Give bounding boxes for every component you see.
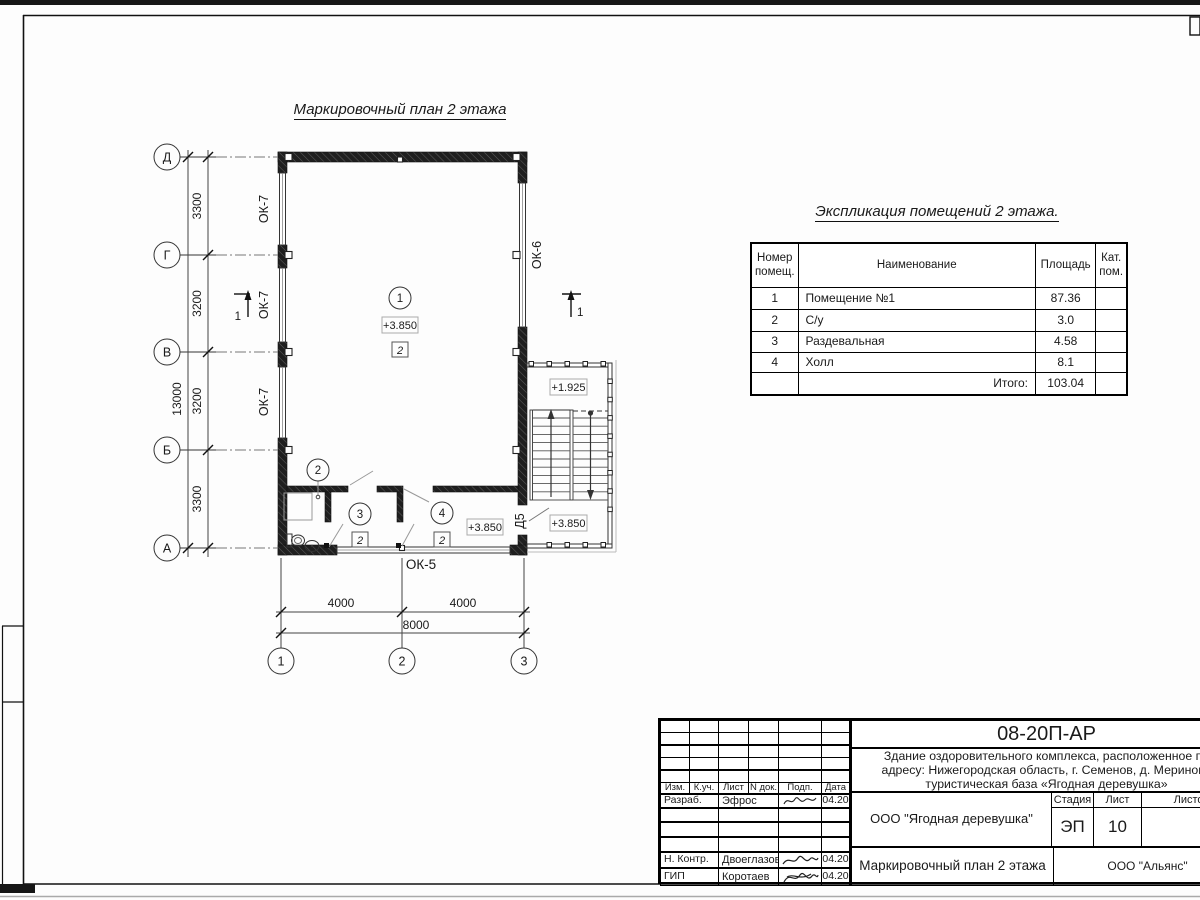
dim-left-4: 3300 [190,485,204,512]
tb-header-podp: Подп. [778,782,822,794]
tb-revision-cell [660,770,690,783]
tb-name-razrab: Эфрос [718,794,779,808]
signature-icon [781,853,819,867]
explication-title: Экспликация помещений 2 этажа. [802,203,1072,222]
title-block: Изм. К.уч. Лист N док. Подп. Дата Разраб… [658,718,1200,884]
tb-header-kuch: К.уч. [689,782,719,794]
tb-signature-nkontr [778,852,822,868]
section-mark-label-right: 1 [577,307,583,319]
window-label-ok7-3: ОК-7 [257,388,271,416]
elevation-room1: +3.850 [383,320,417,332]
tb-header-data: Дата [821,782,850,794]
tb-revision-cell [821,770,850,783]
tb-revision-cell [748,770,779,783]
dim-bottom-1: 4000 [328,596,355,610]
room-number-4: 4 [439,508,446,520]
col-header-number: Номер помещ. [752,244,799,288]
cell-name: Раздевальная [799,332,1036,353]
sheet-label: Лист [1093,792,1142,808]
dimension-ticks [183,152,529,638]
tb-revision-cell [689,745,719,758]
shower-tray [284,493,312,520]
tb-revision-cell [689,770,719,783]
tb-header-izm: Изм. [660,782,690,794]
tb-name-nkontr: Двоеглазов [718,852,779,868]
sheet-number: 10 [1093,807,1142,847]
section-mark-label-left: 1 [235,311,241,323]
axis-label-1: 1 [278,655,285,669]
dim-bottom-2: 4000 [450,596,477,610]
room-number-3: 3 [357,509,363,521]
tb-empty-cell [821,808,850,822]
tb-header-ndok: N док. [748,782,779,794]
explication-header-row: Номер помещ. Наименование Площадь Кат. п… [752,244,1126,288]
tb-empty-cell [821,822,850,837]
tb-revision-cell [689,732,719,745]
axis-label-3: 3 [521,655,528,669]
dim-left-2: 3200 [190,290,204,317]
tb-revision-cell [821,732,850,745]
tb-date-razrab: 04.20 [821,794,850,808]
total-label: Итого: [799,373,1036,394]
tb-revision-cell [660,732,690,745]
category-room4: 2 [438,535,445,547]
tb-revision-cell [660,757,690,770]
room-number-1: 1 [397,293,403,305]
axis-label-v: В [163,346,171,360]
leader-lines [316,471,429,548]
axis-bubbles [154,144,537,674]
table-row: 4 Холл 8.1 [752,353,1126,373]
window-label-ok6: ОК-6 [530,241,544,269]
document-number: 08-20П-АР [850,720,1200,748]
organization-name: ООО "Альянс" [1053,847,1200,886]
tb-revision-cell [718,745,749,758]
signature-icon [781,869,819,885]
tb-revision-cell [821,757,850,770]
axis-label-a: А [163,542,172,556]
total-value: 103.04 [1036,373,1096,394]
tb-role-nkontr: Н. Контр. [660,852,719,868]
tb-empty-cell [821,837,850,852]
tb-revision-cell [718,732,749,745]
tb-role-gip: ГИП [660,868,719,886]
tb-signature-gip [778,868,822,886]
cell-area: 4.58 [1036,332,1096,353]
elevation-hall: +3.850 [468,522,502,534]
axis-label-d: Д [163,151,172,165]
tb-empty-cell [718,808,779,822]
window-label-ok7-1: ОК-7 [257,195,271,223]
tb-role-razrab: Разраб. [660,794,719,808]
elevation-stair-upper: +1.925 [552,382,586,394]
tb-revision-cell [748,720,779,733]
toilet-bowl [292,535,305,546]
tb-empty-cell [660,808,719,822]
stage-value: ЭП [1051,807,1094,847]
col-header-name: Наименование [799,244,1036,288]
project-line-1: Здание оздоровительного комплекса, распо… [884,749,1200,763]
stage-label: Стадия [1051,792,1094,808]
tb-revision-cell [689,720,719,733]
cell-number: 1 [752,288,799,310]
dim-left-3: 3200 [190,387,204,414]
project-description: Здание оздоровительного комплекса, распо… [850,748,1200,792]
tb-empty-cell [778,837,822,852]
cell-name: С/у [799,310,1036,332]
tb-revision-cell [748,745,779,758]
door-label-d5: Д5 [513,513,527,528]
sheets-label: Листов [1141,792,1200,808]
dim-left-1: 3300 [190,192,204,219]
tb-revision-cell [748,732,779,745]
door-leaf-line [529,508,549,521]
tb-empty-cell [778,822,822,837]
tb-revision-cell [718,720,749,733]
tb-empty-cell [778,808,822,822]
tb-revision-cell [778,720,822,733]
tb-revision-cell [660,720,690,733]
table-row: 3 Раздевальная 4.58 [752,332,1126,353]
project-line-2: адресу: Нижегородская область, г. Семено… [882,763,1200,777]
category-room3: 2 [356,535,363,547]
tb-revision-cell [778,732,822,745]
cell-category [1096,288,1126,310]
room-number-2: 2 [315,465,321,477]
table-total-row: Итого: 103.04 [752,373,1126,394]
tb-revision-cell [718,770,749,783]
elevation-stair-lower: +3.850 [552,518,586,530]
tb-revision-cell [821,745,850,758]
signature-icon [782,795,818,807]
project-line-3: туристическая база «Ягодная деревушка» [925,777,1167,791]
plan-title: Маркировочный план 2 этажа [285,101,515,120]
tb-revision-cell [778,745,822,758]
tb-header-list: Лист [718,782,749,794]
axis-label-2: 2 [399,655,406,669]
cell-area: 87.36 [1036,288,1096,310]
window-label-ok7-2: ОК-7 [257,291,271,319]
cell-empty [752,373,799,394]
category-room1: 2 [396,345,403,357]
tb-empty-cell [718,837,779,852]
tb-name-gip: Коротаев [718,868,779,886]
tb-revision-cell [748,757,779,770]
tb-signature-razrab [778,794,822,808]
table-row: 1 Помещение №1 87.36 [752,288,1126,310]
tb-date-gip: 04.20 [821,868,850,886]
section-marks [234,290,581,317]
tb-date-nkontr: 04.20 [821,852,850,868]
tb-empty-cell [660,822,719,837]
dimension-lines [188,150,530,648]
axis-label-g: Г [164,249,171,263]
cell-number: 4 [752,353,799,373]
tb-revision-cell [821,720,850,733]
tb-revision-cell [778,770,822,783]
tb-revision-cell [718,757,749,770]
drawing-sheet: Д Г В Б А 1 2 3 3300 3200 3200 3300 1300… [0,0,1200,900]
cell-name: Помещение №1 [799,288,1036,310]
partition-walls [287,486,518,522]
sheets-value [1141,807,1200,847]
dim-bottom-total: 8000 [403,618,430,632]
col-header-area: Площадь [1036,244,1096,288]
client-name: ООО "Ягодная деревушка" [850,792,1052,847]
cell-name: Холл [799,353,1036,373]
dim-left-total: 13000 [170,382,184,416]
tb-revision-cell [689,757,719,770]
cell-area: 3.0 [1036,310,1096,332]
tb-empty-cell [660,837,719,852]
window-label-ok5: ОК-5 [406,557,436,572]
cell-area: 8.1 [1036,353,1096,373]
cell-number: 2 [752,310,799,332]
cell-category [1096,332,1126,353]
bathroom-fixtures [284,493,319,552]
cell-number: 3 [752,332,799,353]
stair-down-arrow [587,490,594,500]
tb-empty-cell [718,822,779,837]
col-header-category: Кат. пом. [1096,244,1126,288]
tb-revision-cell [660,745,690,758]
axis-label-b: Б [163,444,171,458]
explication-table: Номер помещ. Наименование Площадь Кат. п… [750,242,1128,396]
cell-category [1096,353,1126,373]
cell-category [1096,310,1126,332]
drawing-name: Маркировочный план 2 этажа [850,847,1054,886]
table-row: 2 С/у 3.0 [752,310,1126,332]
tb-revision-cell [778,757,822,770]
cell-empty [1096,373,1126,394]
